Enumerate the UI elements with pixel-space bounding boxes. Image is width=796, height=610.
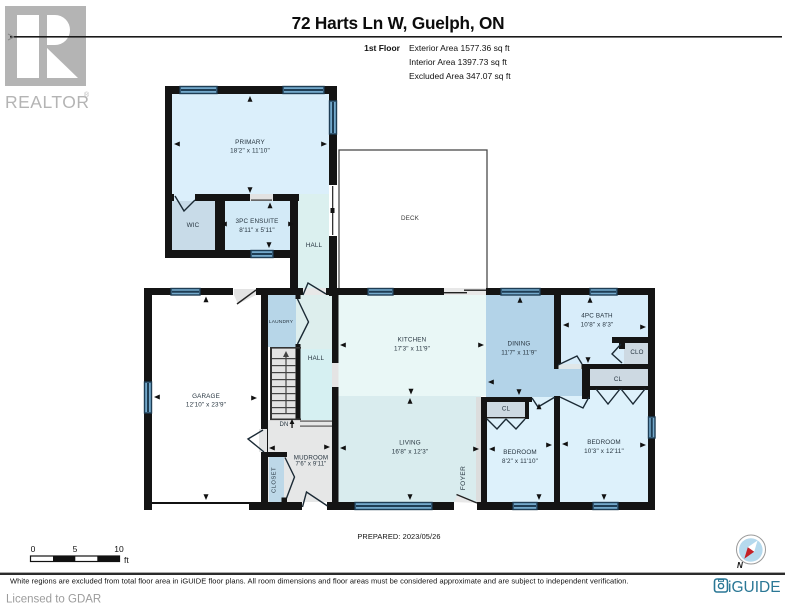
svg-text:18'2" x 11'10": 18'2" x 11'10" [230,148,270,155]
svg-text:LIVING: LIVING [399,440,421,447]
svg-text:®: ® [84,91,90,99]
svg-text:Interior Area 1397.73 sq ft: Interior Area 1397.73 sq ft [409,57,507,67]
svg-text:HALL: HALL [308,355,325,362]
svg-text:4PC BATH: 4PC BATH [581,313,613,320]
svg-text:HALL: HALL [306,242,323,249]
svg-text:GARAGE: GARAGE [192,393,220,400]
svg-text:PREPARED: 2023/05/26: PREPARED: 2023/05/26 [357,532,440,541]
svg-text:Licensed to GDAR: Licensed to GDAR [6,594,101,606]
svg-text:12'10" x 23'9": 12'10" x 23'9" [186,402,226,409]
svg-text:ft: ft [124,555,129,565]
svg-text:17'3" x 11'9": 17'3" x 11'9" [394,346,430,353]
svg-text:10: 10 [114,544,124,554]
svg-text:1st Floor: 1st Floor [364,43,401,53]
svg-text:FOYER: FOYER [460,466,467,490]
svg-text:BEDROOM: BEDROOM [587,439,621,446]
svg-text:WIC: WIC [187,222,200,229]
svg-text:Exterior Area 1577.36 sq ft: Exterior Area 1577.36 sq ft [409,43,510,53]
svg-text:72 Harts Ln W, Guelph, ON: 72 Harts Ln W, Guelph, ON [292,13,505,33]
svg-text:DINING: DINING [508,341,531,348]
svg-text:PRIMARY: PRIMARY [235,139,265,146]
svg-text:10'3" x 12'11": 10'3" x 12'11" [584,448,624,455]
svg-text:iGUIDE: iGUIDE [728,579,781,596]
svg-text:8'2" x 11'10": 8'2" x 11'10" [502,458,538,465]
svg-text:3PC ENSUITE: 3PC ENSUITE [236,218,279,225]
svg-text:REALTOR: REALTOR [5,92,90,112]
svg-text:CLOSET: CLOSET [272,467,278,493]
svg-text:White regions are excluded fro: White regions are excluded from total fl… [10,577,629,586]
svg-text:DN: DN [280,422,289,428]
svg-text:DECK: DECK [401,215,420,222]
svg-text:CLO: CLO [630,349,643,356]
svg-text:MUDROOM: MUDROOM [294,455,328,462]
svg-text:16'8" x 12'3": 16'8" x 12'3" [392,449,429,456]
svg-text:BEDROOM: BEDROOM [503,449,537,456]
svg-text:KITCHEN: KITCHEN [398,337,427,344]
svg-text:N: N [737,561,743,570]
svg-text:11'7" x 11'9": 11'7" x 11'9" [501,350,537,357]
svg-text:10'8" x 8'3": 10'8" x 8'3" [581,322,614,329]
svg-text:LAUNDRY: LAUNDRY [269,319,294,325]
svg-text:CL: CL [502,406,511,413]
svg-text:7'6" x 9'11": 7'6" x 9'11" [296,462,327,468]
svg-text:0: 0 [31,544,36,554]
svg-text:5: 5 [73,544,78,554]
svg-text:Excluded Area 347.07 sq ft: Excluded Area 347.07 sq ft [409,71,511,81]
svg-text:8'11" x 5'11": 8'11" x 5'11" [239,227,275,234]
svg-text:CL: CL [614,376,623,383]
